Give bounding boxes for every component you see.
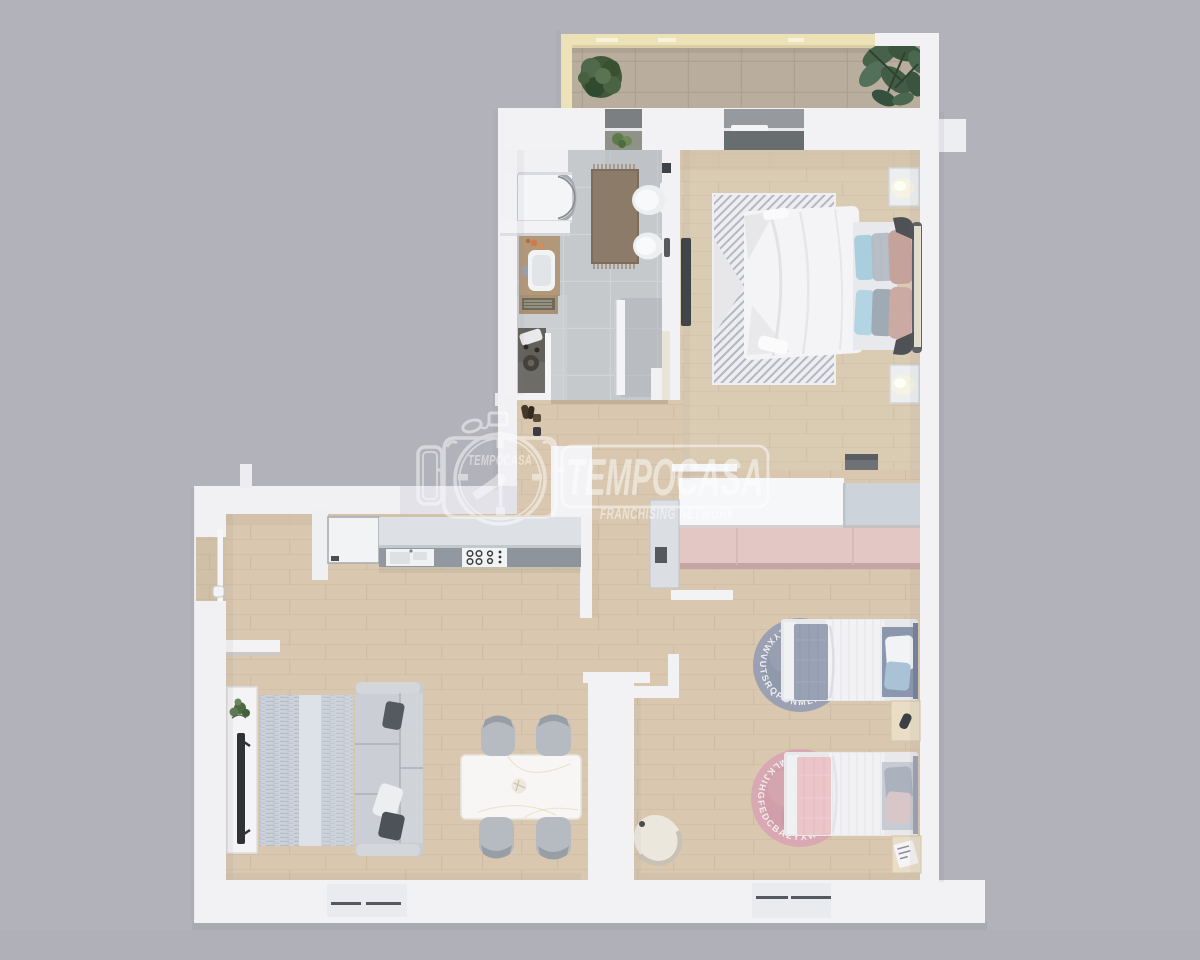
- svg-text:FRANCHISING NETWORK: FRANCHISING NETWORK: [600, 505, 736, 523]
- svg-text:TEMPOCASA: TEMPOCASA: [566, 449, 763, 506]
- svg-text:TEMPOCASA: TEMPOCASA: [468, 452, 532, 469]
